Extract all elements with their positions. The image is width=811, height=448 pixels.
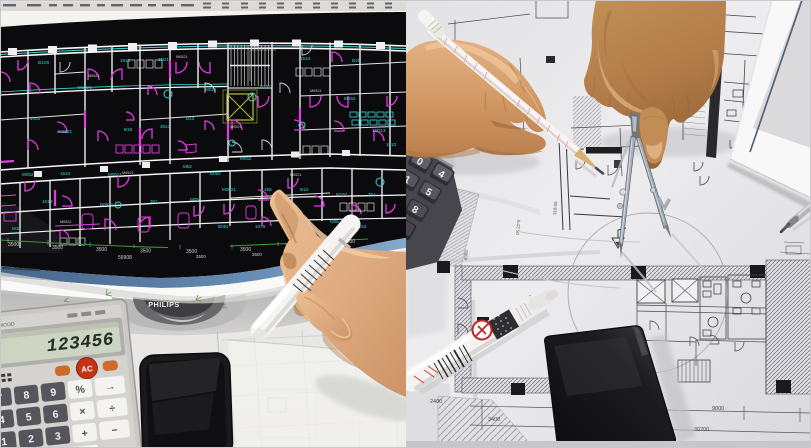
- svg-text:M152: M152: [344, 96, 356, 101]
- svg-text:2400: 2400: [430, 399, 442, 405]
- svg-text:1376: 1376: [255, 224, 266, 229]
- svg-text:×: ×: [79, 406, 86, 419]
- svg-text:M0521: M0521: [350, 209, 362, 213]
- svg-text:M1521: M1521: [58, 129, 72, 134]
- svg-text:1513: 1513: [120, 58, 131, 63]
- svg-text:B052: B052: [210, 171, 221, 176]
- svg-text:B13: B13: [186, 116, 195, 121]
- svg-text:1513: 1513: [386, 142, 397, 147]
- svg-text:B13: B13: [300, 187, 309, 192]
- svg-text:M05: M05: [190, 197, 199, 202]
- svg-text:AC: AC: [81, 364, 94, 374]
- svg-text:M052: M052: [22, 172, 34, 177]
- svg-text:→: →: [104, 380, 116, 393]
- svg-text:M152: M152: [336, 192, 348, 197]
- svg-text:B152: B152: [260, 84, 271, 89]
- svg-text:3400: 3400: [488, 417, 500, 423]
- svg-text:B1X5: B1X5: [38, 60, 50, 65]
- svg-text:3500: 3500: [140, 249, 151, 255]
- svg-text:56908: 56908: [118, 255, 132, 261]
- svg-text:1453: 1453: [30, 116, 41, 121]
- svg-text:1513: 1513: [60, 171, 71, 176]
- svg-text:M05: M05: [330, 219, 339, 224]
- svg-text:3500: 3500: [8, 242, 19, 248]
- svg-text:M0521: M0521: [310, 89, 322, 93]
- svg-text:M0521: M0521: [176, 55, 188, 59]
- svg-text:M0521: M0521: [60, 220, 72, 224]
- svg-text:B0521: B0521: [100, 202, 114, 207]
- svg-text:155: 155: [264, 187, 272, 192]
- svg-text:15D13: 15D13: [372, 128, 386, 133]
- svg-text:3500: 3500: [240, 247, 251, 253]
- svg-text:351: 351: [150, 199, 158, 204]
- svg-text:M52: M52: [183, 164, 192, 169]
- svg-text:1513: 1513: [42, 199, 53, 204]
- svg-text:3500: 3500: [252, 252, 262, 257]
- svg-text:M0521: M0521: [88, 74, 100, 78]
- svg-text:1513: 1513: [300, 56, 311, 61]
- svg-text:M0521: M0521: [122, 171, 134, 175]
- svg-text:−: −: [111, 424, 118, 437]
- svg-text:9000: 9000: [712, 406, 724, 412]
- svg-text:+: +: [81, 427, 88, 440]
- svg-text:B15: B15: [352, 58, 361, 63]
- svg-text:351: 351: [368, 192, 376, 197]
- svg-text:M0521: M0521: [222, 187, 236, 192]
- svg-text:M0521: M0521: [108, 172, 122, 177]
- svg-text:8385: 8385: [463, 249, 469, 260]
- svg-text:M15: M15: [12, 226, 21, 231]
- svg-text:M0521: M0521: [290, 173, 302, 177]
- svg-text:3500: 3500: [96, 247, 107, 253]
- svg-text:B15: B15: [124, 127, 133, 132]
- svg-text:M1521: M1521: [78, 85, 92, 90]
- svg-text:B051: B051: [218, 224, 229, 229]
- svg-text:35D1: 35D1: [158, 57, 169, 62]
- svg-text:3500: 3500: [196, 254, 206, 259]
- svg-text:M0521: M0521: [230, 125, 242, 129]
- svg-text:M021: M021: [205, 87, 217, 92]
- svg-text:3513: 3513: [160, 124, 171, 129]
- svg-text:30700: 30700: [694, 427, 709, 433]
- svg-text:3500: 3500: [52, 245, 63, 251]
- svg-text:M052: M052: [240, 156, 252, 161]
